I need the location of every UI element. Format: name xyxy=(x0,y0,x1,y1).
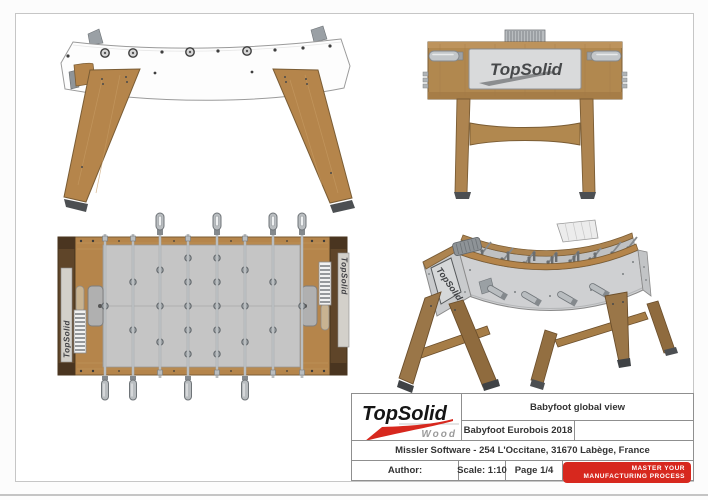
loop-handle-icon xyxy=(156,213,306,235)
logo-brand-text: TopSolid xyxy=(362,403,448,425)
author-label: Author: xyxy=(352,461,459,480)
project-name: Babyfoot Eurobois 2018 xyxy=(462,421,575,441)
corner-bracket-icon xyxy=(88,26,327,45)
brand-text: TopSolid xyxy=(490,60,563,79)
brand-panel: TopSolid xyxy=(469,49,581,89)
window-bottom-edge xyxy=(0,494,708,496)
goal-net-frame xyxy=(557,220,598,242)
wood-leg xyxy=(455,99,595,193)
empty-cell xyxy=(575,421,693,441)
leg-foot xyxy=(454,192,596,199)
slogan-line1: MASTER YOUR xyxy=(632,465,685,473)
svg-text:TopSolid: TopSolid xyxy=(63,319,72,358)
page-label: Page 1/4 xyxy=(506,461,563,480)
back-legs xyxy=(530,301,678,390)
ball-counter-box xyxy=(505,30,545,43)
slogan-badge: MASTER YOUR MANUFACTURING PROCESS xyxy=(563,462,691,483)
logo-edition-text: Wood xyxy=(421,429,457,440)
scale-label: Scale: 1:10 xyxy=(459,461,506,480)
side-elevation-view: circle:not([r]){r:4.2px;} xyxy=(40,25,360,215)
topsolid-logo: TopSolid Wood xyxy=(352,394,462,441)
perspective-view: TopSolid xyxy=(395,212,695,397)
drawing-title: Babyfoot global view xyxy=(462,394,693,421)
top-plan-view: TopSolid TopSolid xyxy=(55,210,355,405)
svg-text:TopSolid: TopSolid xyxy=(340,257,349,296)
grip-handle-icon xyxy=(102,376,249,400)
brand-rail-right: TopSolid xyxy=(338,253,349,347)
company-address: Missler Software - 254 L'Occitane, 31670… xyxy=(352,441,693,461)
brand-rail-left: TopSolid xyxy=(61,268,72,362)
end-elevation-view: TopSolid xyxy=(405,28,645,203)
slogan-line2: MANUFACTURING PROCESS xyxy=(583,473,685,481)
